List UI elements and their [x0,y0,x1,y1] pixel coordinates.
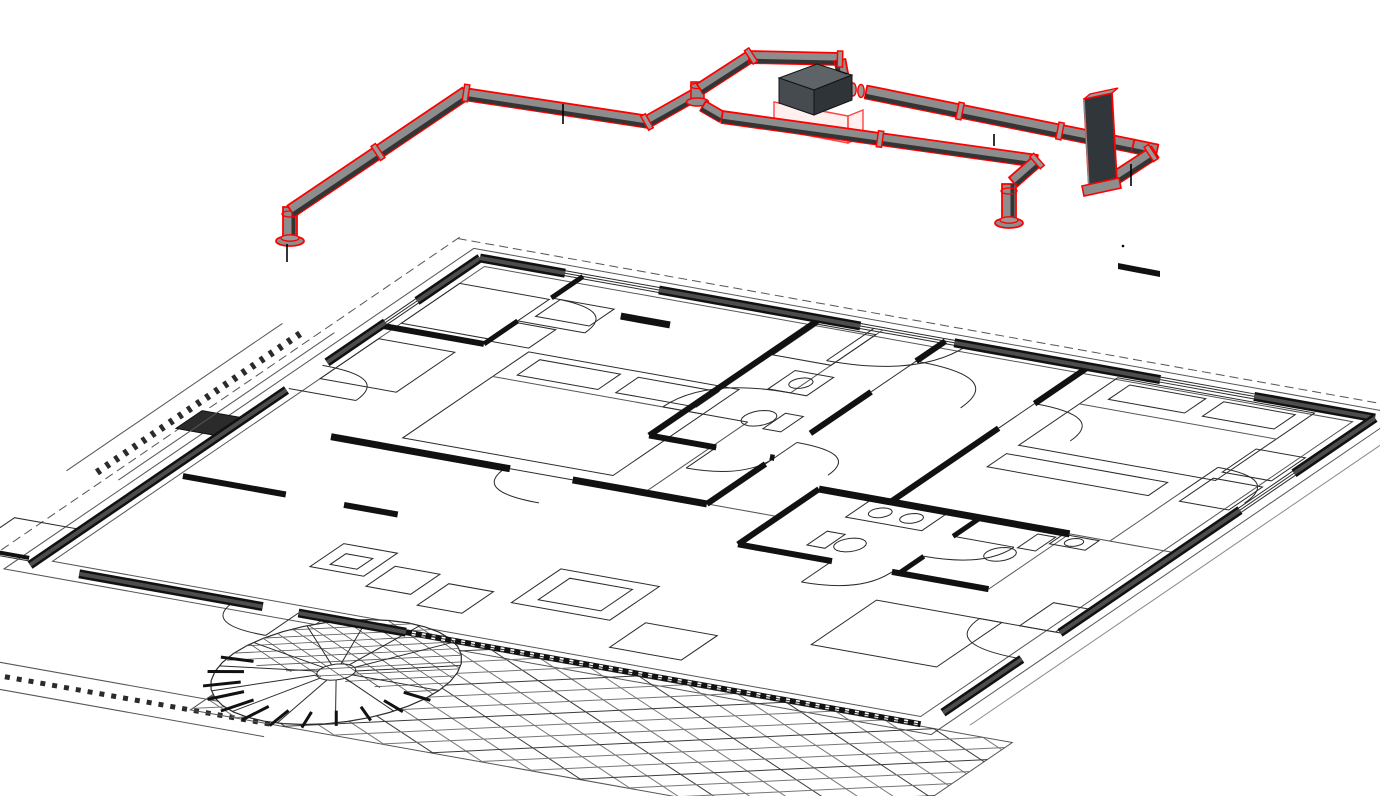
interior-wall [649,435,716,447]
exterior-wall-core [1060,510,1240,633]
hatch-line [544,755,1091,781]
door-leaf [801,561,832,582]
plan-line [989,534,1070,589]
floor-plan [0,237,1380,796]
terrace-hatch [0,541,1380,796]
plan-line [1110,492,1182,541]
vanity-counter [773,324,876,365]
slab-edge-bar [1118,263,1160,277]
kitchen-sink [330,554,373,570]
interior-wall [891,428,999,502]
hatch-line [585,664,844,796]
stair-hatch [50,569,1029,788]
offset-line-nw [0,237,460,558]
door-leaf [289,388,356,400]
interior-wall [707,464,766,504]
door-swing-arc [827,345,968,366]
exterior-wall-core [954,343,1160,380]
pillow [1109,385,1206,413]
hatch-line [1077,752,1336,796]
interior-wall [573,480,707,504]
armchair [1222,449,1305,481]
footing-outline [4,248,1380,734]
exterior-wall-core [480,258,565,273]
door-leaf [953,536,1014,547]
hatch-line [699,669,853,772]
rug [811,600,1002,667]
toilet-tank [807,531,845,548]
interior-wall [381,326,484,344]
exterior-wall-core [659,290,860,326]
round-connector [858,85,864,98]
hatch-line [640,658,794,761]
exterior-wall-core [79,574,262,607]
interior-wall [892,572,989,589]
interior-wall [899,556,924,573]
kitchen-island [417,584,493,614]
diffuser-neck [281,235,299,241]
interior-wall [953,518,980,536]
door-leaf [506,468,573,480]
pillow [1203,402,1296,429]
door-swing-arc [797,443,839,476]
wardrobe [320,339,455,393]
hatch-line [787,685,941,788]
hatch-line [0,614,303,640]
duct-runs[interactable] [276,48,1159,246]
duct-shade [749,61,840,63]
window-band [386,301,418,322]
door-swing-arc [1035,404,1083,441]
offset-line-ne [458,239,1380,409]
dining-table-top [538,578,632,611]
hatch-line [492,632,646,735]
axonometric-scene[interactable] [0,0,1380,796]
vertical-duct-riser[interactable] [1082,88,1121,196]
hatch-line [1028,743,1287,796]
exterior-wall-core [417,258,480,301]
interior-wall [621,316,670,325]
door-leaf [686,447,716,468]
hatch-line [347,719,894,745]
door-leaf [827,328,874,360]
basin-bowl [900,514,924,524]
hatch-line [396,728,943,754]
coffee-table [610,623,718,660]
hatch-line [642,772,1189,796]
exterior-wall-core [30,390,287,565]
exterior-wall-core [943,659,1022,713]
interior-wall [819,489,1070,534]
door-swing-arc [916,361,976,408]
pillow [616,377,719,407]
interior-wall [344,505,398,515]
kitchen-counter [310,544,397,577]
interior-wall [649,319,820,436]
bim-viewport[interactable] [0,0,1380,796]
vertical-panel-duct[interactable] [1084,93,1117,188]
armchair [1180,478,1263,510]
reference-dot [1122,245,1125,248]
plan-line [1079,404,1276,439]
bench [987,454,1168,496]
hatch-line [445,737,992,763]
hatch-line [831,708,1090,796]
hatch-line [0,605,254,631]
window-band [1160,382,1254,399]
basin-bowl [1064,539,1083,547]
interior-wall [770,457,774,458]
hatch-line [741,790,1288,796]
diffuser-neck [1000,217,1018,223]
walkway-edge [118,333,334,480]
plan-line [707,504,779,517]
door-swing-arc [924,547,1014,560]
door-swing-arc [801,572,892,586]
basin-bowl [868,508,892,518]
exterior-wall-core [1294,418,1375,473]
window-band [1240,473,1294,510]
duct-system[interactable] [276,48,1159,262]
interior-wall [738,489,819,544]
door-leaf [518,321,585,333]
spiral-stair [50,569,1029,788]
interior-wall [484,321,518,344]
hatch-line [979,735,1238,796]
window-band [387,303,419,324]
hatch-line [495,746,1042,772]
floor-outlines [0,237,1380,735]
kitchen-counter [366,566,440,594]
hatch-line [593,763,1140,789]
dining-table [511,569,659,620]
terrace-hatch-lines [0,541,1380,796]
interior-wall [183,476,286,494]
interior-wall [1035,367,1089,404]
interior-walls [183,276,1089,589]
pillow [517,360,620,390]
bed-right [1019,378,1315,481]
plan-line [644,422,748,493]
wash-basin [768,371,834,396]
door-leaf [979,619,1060,633]
door-leaf [999,404,1035,429]
toilet-tank [1018,534,1056,551]
hatch-line [551,643,705,746]
interior-wall [810,392,871,433]
walkway-edge [66,323,282,470]
toilet-bowl [741,411,777,427]
toilet-bowl [834,538,867,552]
offset-line-e [970,418,1380,725]
duct-joint-collar[interactable] [837,51,843,67]
